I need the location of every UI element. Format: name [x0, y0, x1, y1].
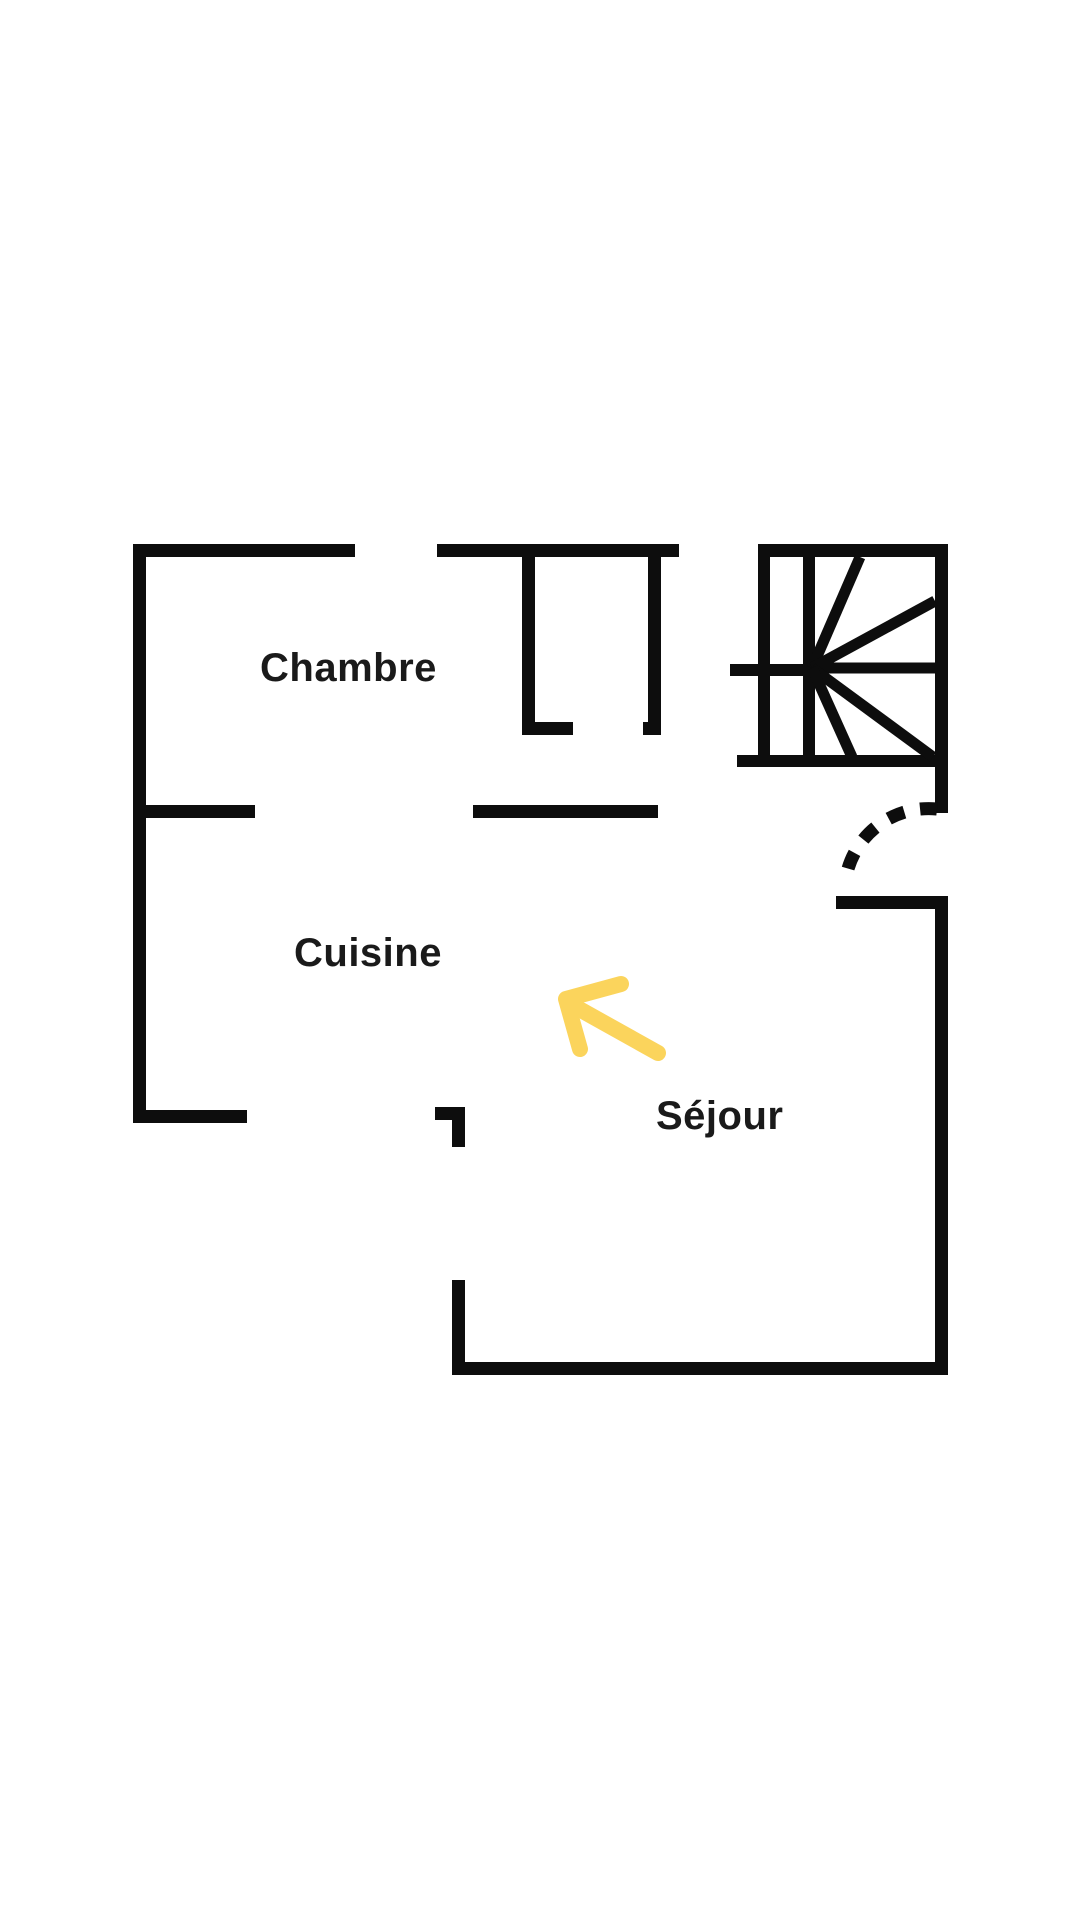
wall-segment [133, 1110, 247, 1123]
room-label-chambre: Chambre [260, 648, 437, 688]
stair-tread-edge [730, 664, 815, 676]
wall-segment [452, 1107, 465, 1147]
arrow-shaft [581, 1010, 658, 1053]
wall-segment [473, 805, 658, 818]
wall-segment [133, 544, 146, 1123]
wall-segment [452, 1280, 465, 1375]
stair-tread-edge [758, 557, 770, 755]
stair-tread-edge [737, 755, 935, 767]
wall-segment [935, 544, 948, 813]
wall-segment [758, 544, 948, 557]
staircase-symbol [730, 557, 935, 767]
wall-segment [452, 1362, 948, 1375]
room-label-sejour: Séjour [656, 1096, 783, 1136]
floor-plan-canvas [0, 0, 1080, 1920]
wall-segment [133, 805, 255, 818]
room-label-cuisine: Cuisine [294, 933, 442, 973]
wall-segment [522, 557, 535, 735]
door-swing-arc [845, 809, 937, 884]
wall-segment [133, 544, 355, 557]
wall-segment [836, 896, 948, 909]
wall-segment [935, 896, 948, 1375]
wall-segment [648, 557, 661, 735]
direction-arrow-icon [566, 984, 658, 1053]
wall-segment [437, 544, 679, 557]
floor-plan: Chambre Cuisine Séjour [0, 0, 1080, 1920]
